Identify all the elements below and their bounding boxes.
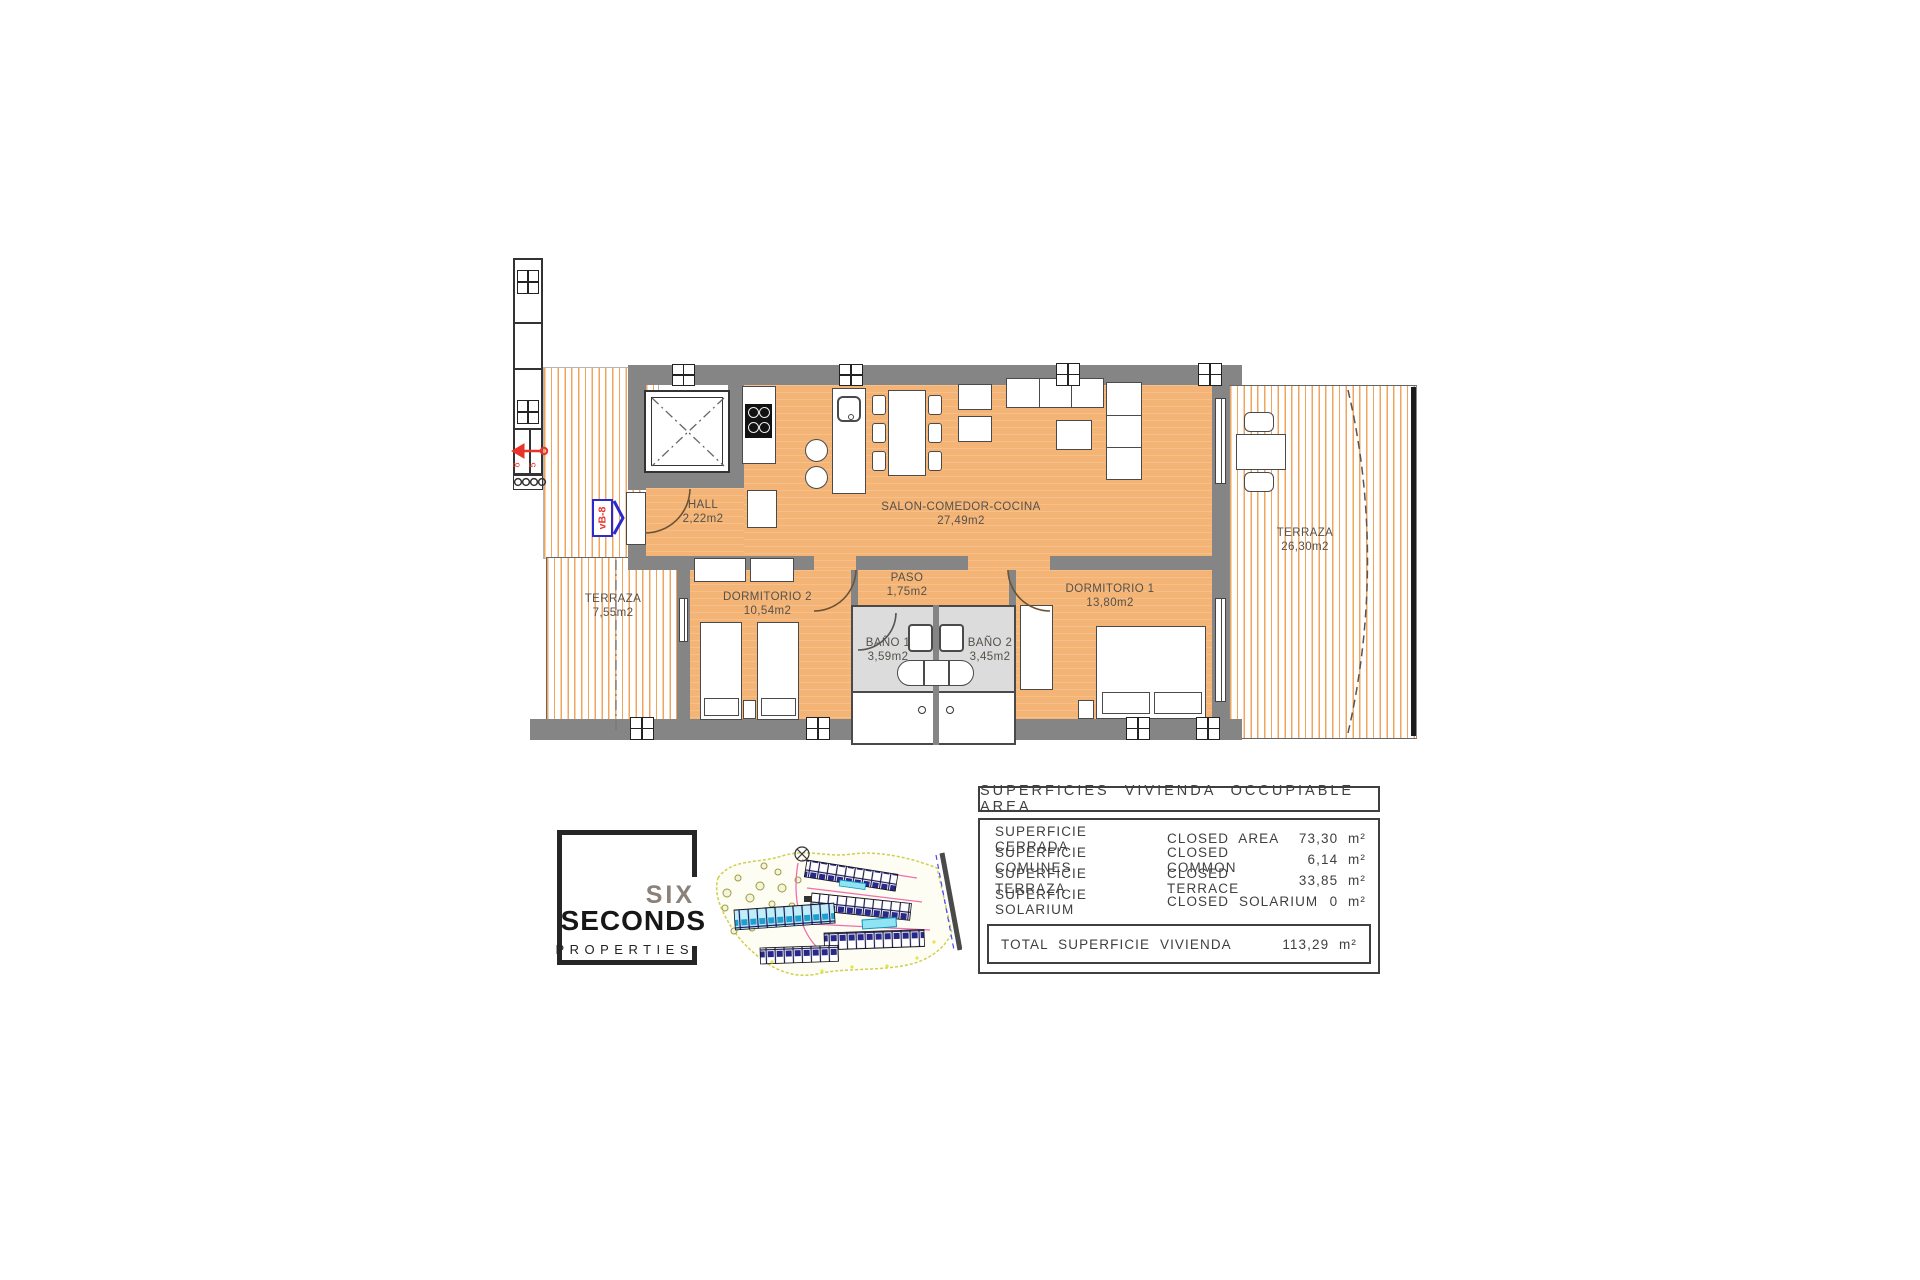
row-label-en: CLOSED TERRACE bbox=[1167, 866, 1299, 896]
window-icon bbox=[517, 400, 539, 424]
room-label-salon: SALON-COMEDOR-COCINA27,49m2 bbox=[881, 500, 1041, 529]
total-value: 113,29 m² bbox=[1282, 937, 1357, 952]
sofa-icon bbox=[1006, 378, 1104, 408]
terrace-chair-icon bbox=[1244, 472, 1274, 492]
row-value: 0 m² bbox=[1330, 894, 1366, 909]
coffee-table-icon bbox=[1056, 420, 1092, 450]
window-icon bbox=[839, 364, 863, 386]
areas-table-total-box: TOTAL SUPERFICIE VIVIENDA 113,29 m² bbox=[987, 924, 1371, 964]
wall-north bbox=[628, 365, 1242, 385]
pillow bbox=[1102, 692, 1150, 714]
areas-table: SUPERFICIE CERRADA CLOSED AREA 73,30 m² … bbox=[978, 818, 1380, 974]
cushion-line bbox=[1039, 379, 1040, 407]
chair-icon bbox=[928, 395, 942, 415]
chair-icon bbox=[928, 451, 942, 471]
entrance-mark-right: 5 bbox=[527, 458, 539, 472]
row-label-en: CLOSED SOLARIUM bbox=[1167, 894, 1330, 909]
drain bbox=[848, 414, 854, 420]
room-label-dormitorio1: DORMITORIO 113,80m2 bbox=[1050, 582, 1170, 611]
terrace-left bbox=[546, 557, 680, 736]
armchair-icon bbox=[958, 416, 992, 442]
glazed-door bbox=[1215, 598, 1226, 702]
gallery-balusters bbox=[513, 475, 543, 490]
floor-plan-sheet: 8 5 bbox=[0, 0, 1920, 1280]
row-value: 6,14 m² bbox=[1308, 852, 1366, 867]
room-label-hall: HALL2,22m2 bbox=[663, 498, 743, 527]
window-icon bbox=[1126, 717, 1150, 740]
toilet-icon bbox=[946, 706, 954, 714]
room-label-bano1: BAÑO 13,59m2 bbox=[848, 636, 928, 665]
elevator-icon bbox=[644, 390, 730, 473]
chair-icon bbox=[872, 395, 886, 415]
wardrobe-icon bbox=[750, 558, 794, 582]
burner bbox=[748, 407, 759, 418]
unit-label-tag: vB-8 bbox=[592, 499, 613, 537]
chair-icon bbox=[872, 423, 886, 443]
cushion-line bbox=[1107, 415, 1141, 416]
room-label-terraza-left: TERRAZA7,55m2 bbox=[563, 592, 663, 621]
room-label-terraza-right: TERRAZA26,30m2 bbox=[1255, 526, 1355, 555]
burner bbox=[759, 422, 770, 433]
stove-icon bbox=[745, 404, 772, 438]
stool-icon bbox=[805, 466, 828, 489]
row-label-es: SUPERFICIE SOLARIUM bbox=[995, 887, 1167, 917]
stool-icon bbox=[805, 439, 828, 462]
window-icon bbox=[1196, 717, 1220, 740]
dining-table-icon bbox=[888, 390, 926, 476]
terrace-table-icon bbox=[1236, 434, 1286, 470]
burner bbox=[748, 422, 759, 433]
wardrobe-icon bbox=[694, 558, 746, 582]
row-value: 73,30 m² bbox=[1299, 831, 1366, 846]
gallery-divider bbox=[515, 322, 541, 324]
window-icon bbox=[1056, 363, 1080, 386]
buildings-row bbox=[824, 930, 925, 950]
kitchen-sink-icon bbox=[837, 396, 861, 422]
window-icon bbox=[806, 717, 830, 740]
armchair-icon bbox=[958, 384, 992, 410]
nightstand-icon bbox=[1078, 700, 1094, 719]
sofa-icon bbox=[1106, 382, 1142, 480]
room-label-bano2: BAÑO 23,45m2 bbox=[950, 636, 1030, 665]
window-icon bbox=[1198, 363, 1222, 386]
wall-elevator-south bbox=[628, 473, 744, 488]
terrace-parapet bbox=[1411, 387, 1416, 736]
window-icon bbox=[517, 270, 539, 294]
window-icon bbox=[630, 717, 654, 740]
pillow bbox=[761, 698, 796, 716]
bed-icon bbox=[700, 622, 742, 720]
logo-word-properties: PROPERTIES bbox=[555, 942, 694, 957]
glazed-door bbox=[679, 598, 688, 642]
pillow bbox=[704, 698, 739, 716]
row-value: 33,85 m² bbox=[1299, 873, 1366, 888]
bed-icon bbox=[1096, 626, 1206, 719]
logo-word-seconds: SECONDS bbox=[561, 905, 706, 937]
gallery-divider bbox=[515, 368, 541, 370]
room-label-paso: PASO1,75m2 bbox=[857, 571, 957, 600]
window-icon bbox=[672, 364, 695, 386]
areas-table-title-box: SUPERFICIES VIVIENDA OCCUPIABLE AREA bbox=[978, 786, 1380, 812]
bed-icon bbox=[757, 622, 799, 720]
entrance-door-leaf bbox=[626, 492, 646, 545]
chair-icon bbox=[928, 423, 942, 443]
elevator-inner bbox=[651, 397, 723, 466]
partition-bedrooms-3 bbox=[1050, 556, 1212, 570]
logo-frame-segment bbox=[692, 835, 697, 877]
pool bbox=[862, 918, 897, 929]
nightstand-icon bbox=[743, 700, 756, 719]
terrace-chair-icon bbox=[1244, 412, 1274, 432]
partition-bedrooms-2 bbox=[856, 556, 968, 570]
areas-table-row: SUPERFICIE SOLARIUM CLOSED SOLARIUM 0 m² bbox=[980, 891, 1378, 912]
brand-logo: SIX SECONDS PROPERTIES bbox=[557, 830, 697, 965]
wall-west-hall-stub bbox=[628, 545, 646, 570]
site-plan-map bbox=[712, 838, 962, 988]
toilet-icon bbox=[918, 706, 926, 714]
chair-icon bbox=[872, 451, 886, 471]
room-label-dormitorio2: DORMITORIO 210,54m2 bbox=[705, 590, 830, 619]
service-area bbox=[804, 896, 812, 902]
entrance-mark-left: 8 bbox=[511, 458, 523, 472]
pillow bbox=[1154, 692, 1202, 714]
total-label: TOTAL SUPERFICIE VIVIENDA bbox=[1001, 937, 1282, 952]
hall-cabinet bbox=[747, 490, 777, 528]
cushion-line bbox=[1107, 447, 1141, 448]
areas-table-title: SUPERFICIES VIVIENDA OCCUPIABLE AREA bbox=[980, 783, 1378, 815]
glazed-door bbox=[1215, 398, 1226, 484]
burner bbox=[759, 407, 770, 418]
